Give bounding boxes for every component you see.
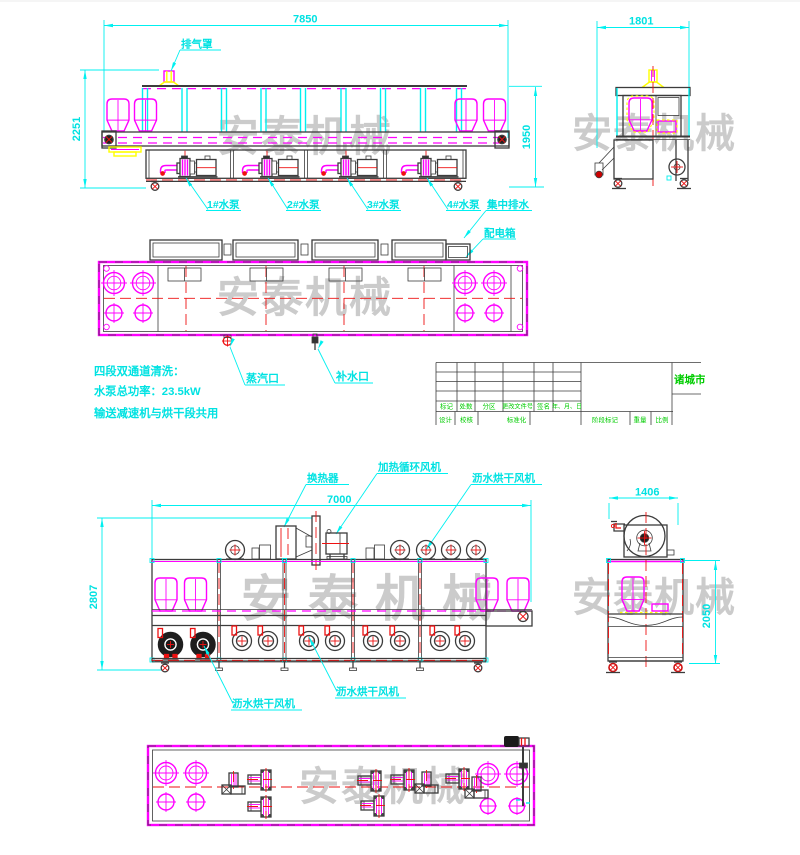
svg-text:7850: 7850 bbox=[293, 14, 317, 26]
svg-text:排气罩: 排气罩 bbox=[181, 38, 213, 51]
svg-text:安泰机械: 安泰机械 bbox=[217, 274, 393, 321]
svg-text:校核: 校核 bbox=[460, 415, 474, 424]
svg-text:4#水泵: 4#水泵 bbox=[447, 198, 480, 211]
svg-text:重量: 重量 bbox=[634, 416, 648, 424]
svg-text:7000: 7000 bbox=[327, 494, 351, 506]
svg-text:1950: 1950 bbox=[521, 125, 533, 149]
svg-text:标准化: 标准化 bbox=[507, 415, 527, 424]
svg-text:换热器: 换热器 bbox=[307, 472, 339, 485]
svg-text:年、月、日: 年、月、日 bbox=[552, 403, 582, 411]
svg-text:2#水泵: 2#水泵 bbox=[287, 198, 320, 211]
svg-text:沥水烘干风机: 沥水烘干风机 bbox=[336, 685, 399, 698]
svg-text:设计: 设计 bbox=[439, 415, 453, 424]
svg-text:1#水泵: 1#水泵 bbox=[207, 198, 240, 211]
svg-text:2807: 2807 bbox=[88, 585, 100, 609]
svg-text:签名: 签名 bbox=[537, 402, 550, 411]
svg-text:集中排水: 集中排水 bbox=[486, 198, 529, 211]
svg-text:1406: 1406 bbox=[635, 487, 659, 499]
svg-text:沥水烘干风机: 沥水烘干风机 bbox=[472, 472, 535, 485]
svg-text:分区: 分区 bbox=[483, 402, 497, 411]
svg-text:水泵总功率：23.5kW: 水泵总功率：23.5kW bbox=[94, 384, 201, 398]
svg-text:输送减速机与烘干段共用: 输送减速机与烘干段共用 bbox=[94, 406, 218, 420]
svg-text:加热循环风机: 加热循环风机 bbox=[377, 461, 441, 474]
svg-text:2050: 2050 bbox=[701, 604, 713, 628]
svg-text:补水口: 补水口 bbox=[335, 369, 369, 383]
svg-text:四段双通道清洗：: 四段双通道清洗： bbox=[94, 364, 184, 378]
svg-text:3#水泵: 3#水泵 bbox=[367, 198, 400, 211]
svg-text:阶段标记: 阶段标记 bbox=[592, 415, 619, 424]
svg-text:处数: 处数 bbox=[460, 402, 474, 411]
svg-text:比例: 比例 bbox=[656, 415, 669, 424]
svg-text:蒸汽口: 蒸汽口 bbox=[246, 371, 279, 385]
svg-text:标记: 标记 bbox=[440, 402, 454, 411]
svg-text:配电箱: 配电箱 bbox=[484, 227, 516, 240]
svg-text:沥水烘干风机: 沥水烘干风机 bbox=[232, 697, 295, 710]
svg-text:更改文件号: 更改文件号 bbox=[502, 403, 533, 411]
svg-text:安泰机械: 安泰机械 bbox=[241, 571, 509, 627]
svg-text:1801: 1801 bbox=[629, 16, 653, 28]
svg-text:2251: 2251 bbox=[71, 117, 83, 141]
